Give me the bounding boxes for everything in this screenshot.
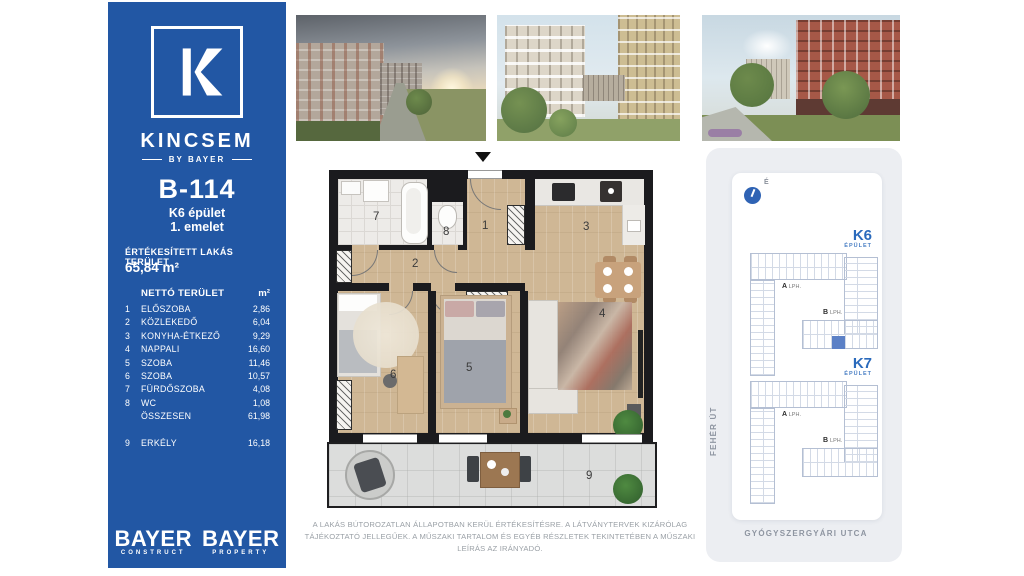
bathroom-sink [341, 181, 361, 195]
hall-kitchen-wall [525, 170, 535, 250]
bayer-construct-logo: BAYER CONSTRUCT [115, 529, 193, 556]
k6-stair-b: B LPH. [823, 309, 842, 316]
render-photo-street-sunset [296, 15, 486, 141]
table-header-unit: m² [258, 288, 270, 299]
sliding-door-threshold [582, 434, 642, 443]
table-balcony-row: 9ERKÉLY16,18 [125, 438, 270, 451]
k7-wing-bottom [802, 448, 878, 477]
table-row: 4NAPPALI16,60 [125, 344, 270, 357]
plate [501, 468, 509, 476]
k7-stair-b: B LPH. [823, 437, 842, 444]
plate [603, 267, 612, 276]
plant-small [503, 410, 511, 418]
balcony-chair [467, 456, 479, 482]
photo-flowers [708, 129, 742, 137]
room-label-nappali: 4 [599, 308, 605, 320]
table-row: 2KÖZLEKEDŐ6,04 [125, 317, 270, 330]
unit-building: K6 épület [108, 206, 286, 220]
wc-top-wall [431, 179, 463, 202]
table-row: 6SZOBA10,57 [125, 371, 270, 384]
table-row: 1ELŐSZOBA2,86 [125, 304, 270, 317]
brand-name: KINCSEM [108, 130, 286, 153]
kincsem-logo [151, 26, 243, 118]
room-label-wc: 8 [443, 226, 449, 238]
living-divider-wall [520, 291, 528, 442]
room-label-szoba6: 6 [390, 369, 396, 381]
building-k7-label: K7 ÉPÜLET [844, 357, 872, 377]
table-spacer [125, 425, 270, 438]
room-label-eloszoba: 1 [482, 220, 488, 232]
room-label-furdoszoba: 7 [373, 211, 379, 223]
wc-right-wall [463, 179, 467, 245]
photo-building-right [618, 15, 680, 127]
side-sink [627, 220, 641, 232]
sidebar: KINCSEM BY BAYER B-114 K6 épület 1. emel… [108, 2, 286, 568]
net-area-table: NETTÓ TERÜLET m² 1ELŐSZOBA2,86 2KÖZLEKED… [125, 288, 270, 451]
table-header-name: NETTÓ TERÜLET [141, 288, 258, 299]
sold-area-value: 65,84 m² [125, 260, 275, 275]
entrance-arrow-icon [475, 152, 491, 162]
photo-tree [406, 89, 432, 115]
table-row: 5SZOBA11,46 [125, 358, 270, 371]
photo-cloud [742, 29, 792, 63]
plate [624, 284, 633, 293]
tv [638, 330, 643, 398]
room-label-erkely: 9 [586, 470, 592, 482]
pillow [445, 301, 474, 317]
balcony-plant [613, 474, 643, 504]
wall-seg [413, 283, 431, 291]
kincsem-k-icon [166, 41, 228, 103]
cooktop [552, 183, 575, 201]
plate [487, 460, 496, 469]
wall-seg [455, 283, 525, 291]
room-label-kozlekedo: 2 [412, 258, 418, 270]
highlighted-unit [832, 336, 845, 349]
sliding-door-threshold [363, 434, 417, 443]
sliding-door-threshold [439, 434, 487, 443]
brand-tagline: BY BAYER [108, 155, 286, 164]
footer-logos: BAYER CONSTRUCT BAYER PROPERTY [108, 529, 286, 556]
plate [624, 267, 633, 276]
north-label: É [764, 179, 769, 186]
tagline-dash-right [232, 159, 252, 160]
north-indicator-icon [744, 187, 761, 204]
tagline-dash-left [142, 159, 162, 160]
room-label-szoba5: 5 [466, 362, 472, 374]
bayer-property-logo: BAYER PROPERTY [202, 529, 280, 556]
washing-machine [363, 180, 389, 202]
render-photo-brick-street [702, 15, 900, 141]
balcony-table [480, 452, 520, 488]
building-k6-label: K6 ÉPÜLET [844, 229, 872, 249]
k6-stair-a: A LPH. [782, 283, 801, 290]
site-card: É K6 ÉPÜLET A LPH. B LPH. K7 ÉPÜLET A LP… [732, 173, 882, 520]
table-total-row: ÖSSZESEN61,98 [125, 411, 270, 424]
desk [397, 356, 424, 414]
wall-seg [379, 245, 434, 250]
street-label-gyogyszergyari: GYÓGYSZERGYÁRI UTCA [734, 529, 878, 538]
site-map: É K6 ÉPÜLET A LPH. B LPH. K7 ÉPÜLET A LP… [706, 148, 902, 562]
bedroom-divider-wall [428, 291, 436, 442]
blanket [444, 340, 506, 403]
street-label-feher-ut: FEHÉR ÚT [709, 380, 718, 456]
table-row: 3KONYHA-ÉTKEZŐ9,29 [125, 331, 270, 344]
photo-tree [549, 109, 577, 137]
photo-hedge [296, 121, 380, 141]
photo-tree [822, 71, 870, 119]
north-needle [751, 189, 756, 197]
floor-plan: 1 2 3 4 5 6 7 8 9 [327, 150, 659, 516]
pillow [476, 301, 505, 317]
photo-tree [730, 63, 774, 107]
wall-seg [458, 245, 467, 250]
unit-id: B-114 [108, 174, 286, 205]
photo-building-far [583, 75, 625, 101]
brochure-page: KINCSEM BY BAYER B-114 K6 épület 1. emel… [0, 0, 1024, 576]
area-rug [558, 302, 632, 390]
k6-wing-top [750, 253, 847, 280]
k7-wing-top [750, 381, 847, 408]
balcony-chair [519, 456, 531, 482]
dining-table [595, 262, 641, 298]
table-header: NETTÓ TERÜLET m² [125, 288, 270, 304]
k7-stair-a: A LPH. [782, 411, 801, 418]
room-label-konyha: 3 [583, 221, 589, 233]
disclaimer-text: A LAKÁS BÚTOROZATLAN ÁLLAPOTBAN KERÜL ÉR… [295, 519, 705, 555]
plate [603, 284, 612, 293]
unit-floor: 1. emelet [108, 220, 286, 234]
radiator [336, 380, 352, 430]
built-in-closet [507, 205, 525, 245]
table-row: 8WC1,08 [125, 398, 270, 411]
entry-door-threshold [468, 170, 502, 179]
sink-basin [608, 188, 614, 194]
table-row: 7FÜRDŐSZOBA4,08 [125, 384, 270, 397]
render-photo-courtyard [497, 15, 680, 141]
k6-wing-left [750, 280, 775, 376]
k7-wing-left [750, 408, 775, 504]
wall-seg [333, 283, 389, 291]
bathtub-basin [406, 188, 421, 234]
sofa [528, 300, 558, 394]
radiator [336, 250, 352, 283]
photo-tree [501, 87, 547, 133]
sofa-chaise [528, 388, 578, 414]
